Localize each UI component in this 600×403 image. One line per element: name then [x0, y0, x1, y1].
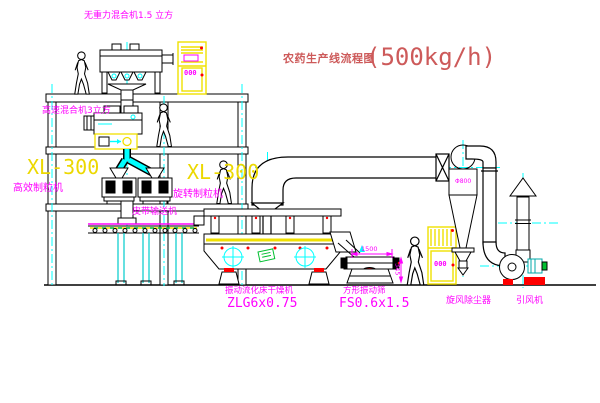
person-top-floor	[75, 52, 90, 94]
exhaust-duct	[252, 154, 449, 234]
sieve-model-label: FS0.6x1.5	[339, 297, 409, 310]
gravity-mixer-label: 无重力混合机1.5 立方	[84, 12, 173, 21]
cabinet2-display: 000	[434, 261, 447, 268]
page-title: 农药生产线流程图	[283, 53, 375, 64]
control-cabinet-1	[178, 42, 206, 94]
granulator-left	[102, 168, 136, 204]
granulator-center-name: 旋转制粒机	[173, 190, 223, 200]
belt-conveyor-label: 皮带输送机	[132, 208, 177, 217]
sieve-height-dim: 345	[394, 263, 401, 275]
sieve-name-label: 方形振动筛	[343, 287, 386, 296]
fluid-bed-dryer	[204, 209, 365, 284]
fan-label: 引风机	[516, 297, 543, 306]
dryer-model-label: ZLG6x0.75	[227, 297, 297, 310]
sieve-length-dim: 1500	[361, 246, 378, 253]
granulator-center-model: XL-300	[187, 162, 259, 182]
belt-conveyor	[88, 216, 204, 285]
cabinet1-display: 000	[184, 70, 197, 77]
high-speed-mixer-label: 高速混合机3立方	[42, 107, 111, 116]
granulator-left-name: 高效制粒机	[13, 184, 63, 194]
exhaust-stack	[510, 178, 536, 250]
control-cabinet-2	[428, 227, 456, 284]
person-ground	[407, 237, 424, 285]
cyclone-diameter-dim: Φ800	[455, 179, 471, 185]
cyclone-label: 旋风除尘器	[446, 297, 491, 306]
cad-flow-diagram: 无重力混合机1.5 立方 农药生产线流程图 (500kg/h) 高速混合机3立方…	[0, 0, 600, 403]
granulator-left-model: XL-300	[27, 157, 99, 177]
page-title-capacity: (500kg/h)	[366, 45, 496, 69]
dryer-name-label: 振动流化床干燥机	[225, 287, 293, 296]
pump-box	[95, 134, 137, 149]
